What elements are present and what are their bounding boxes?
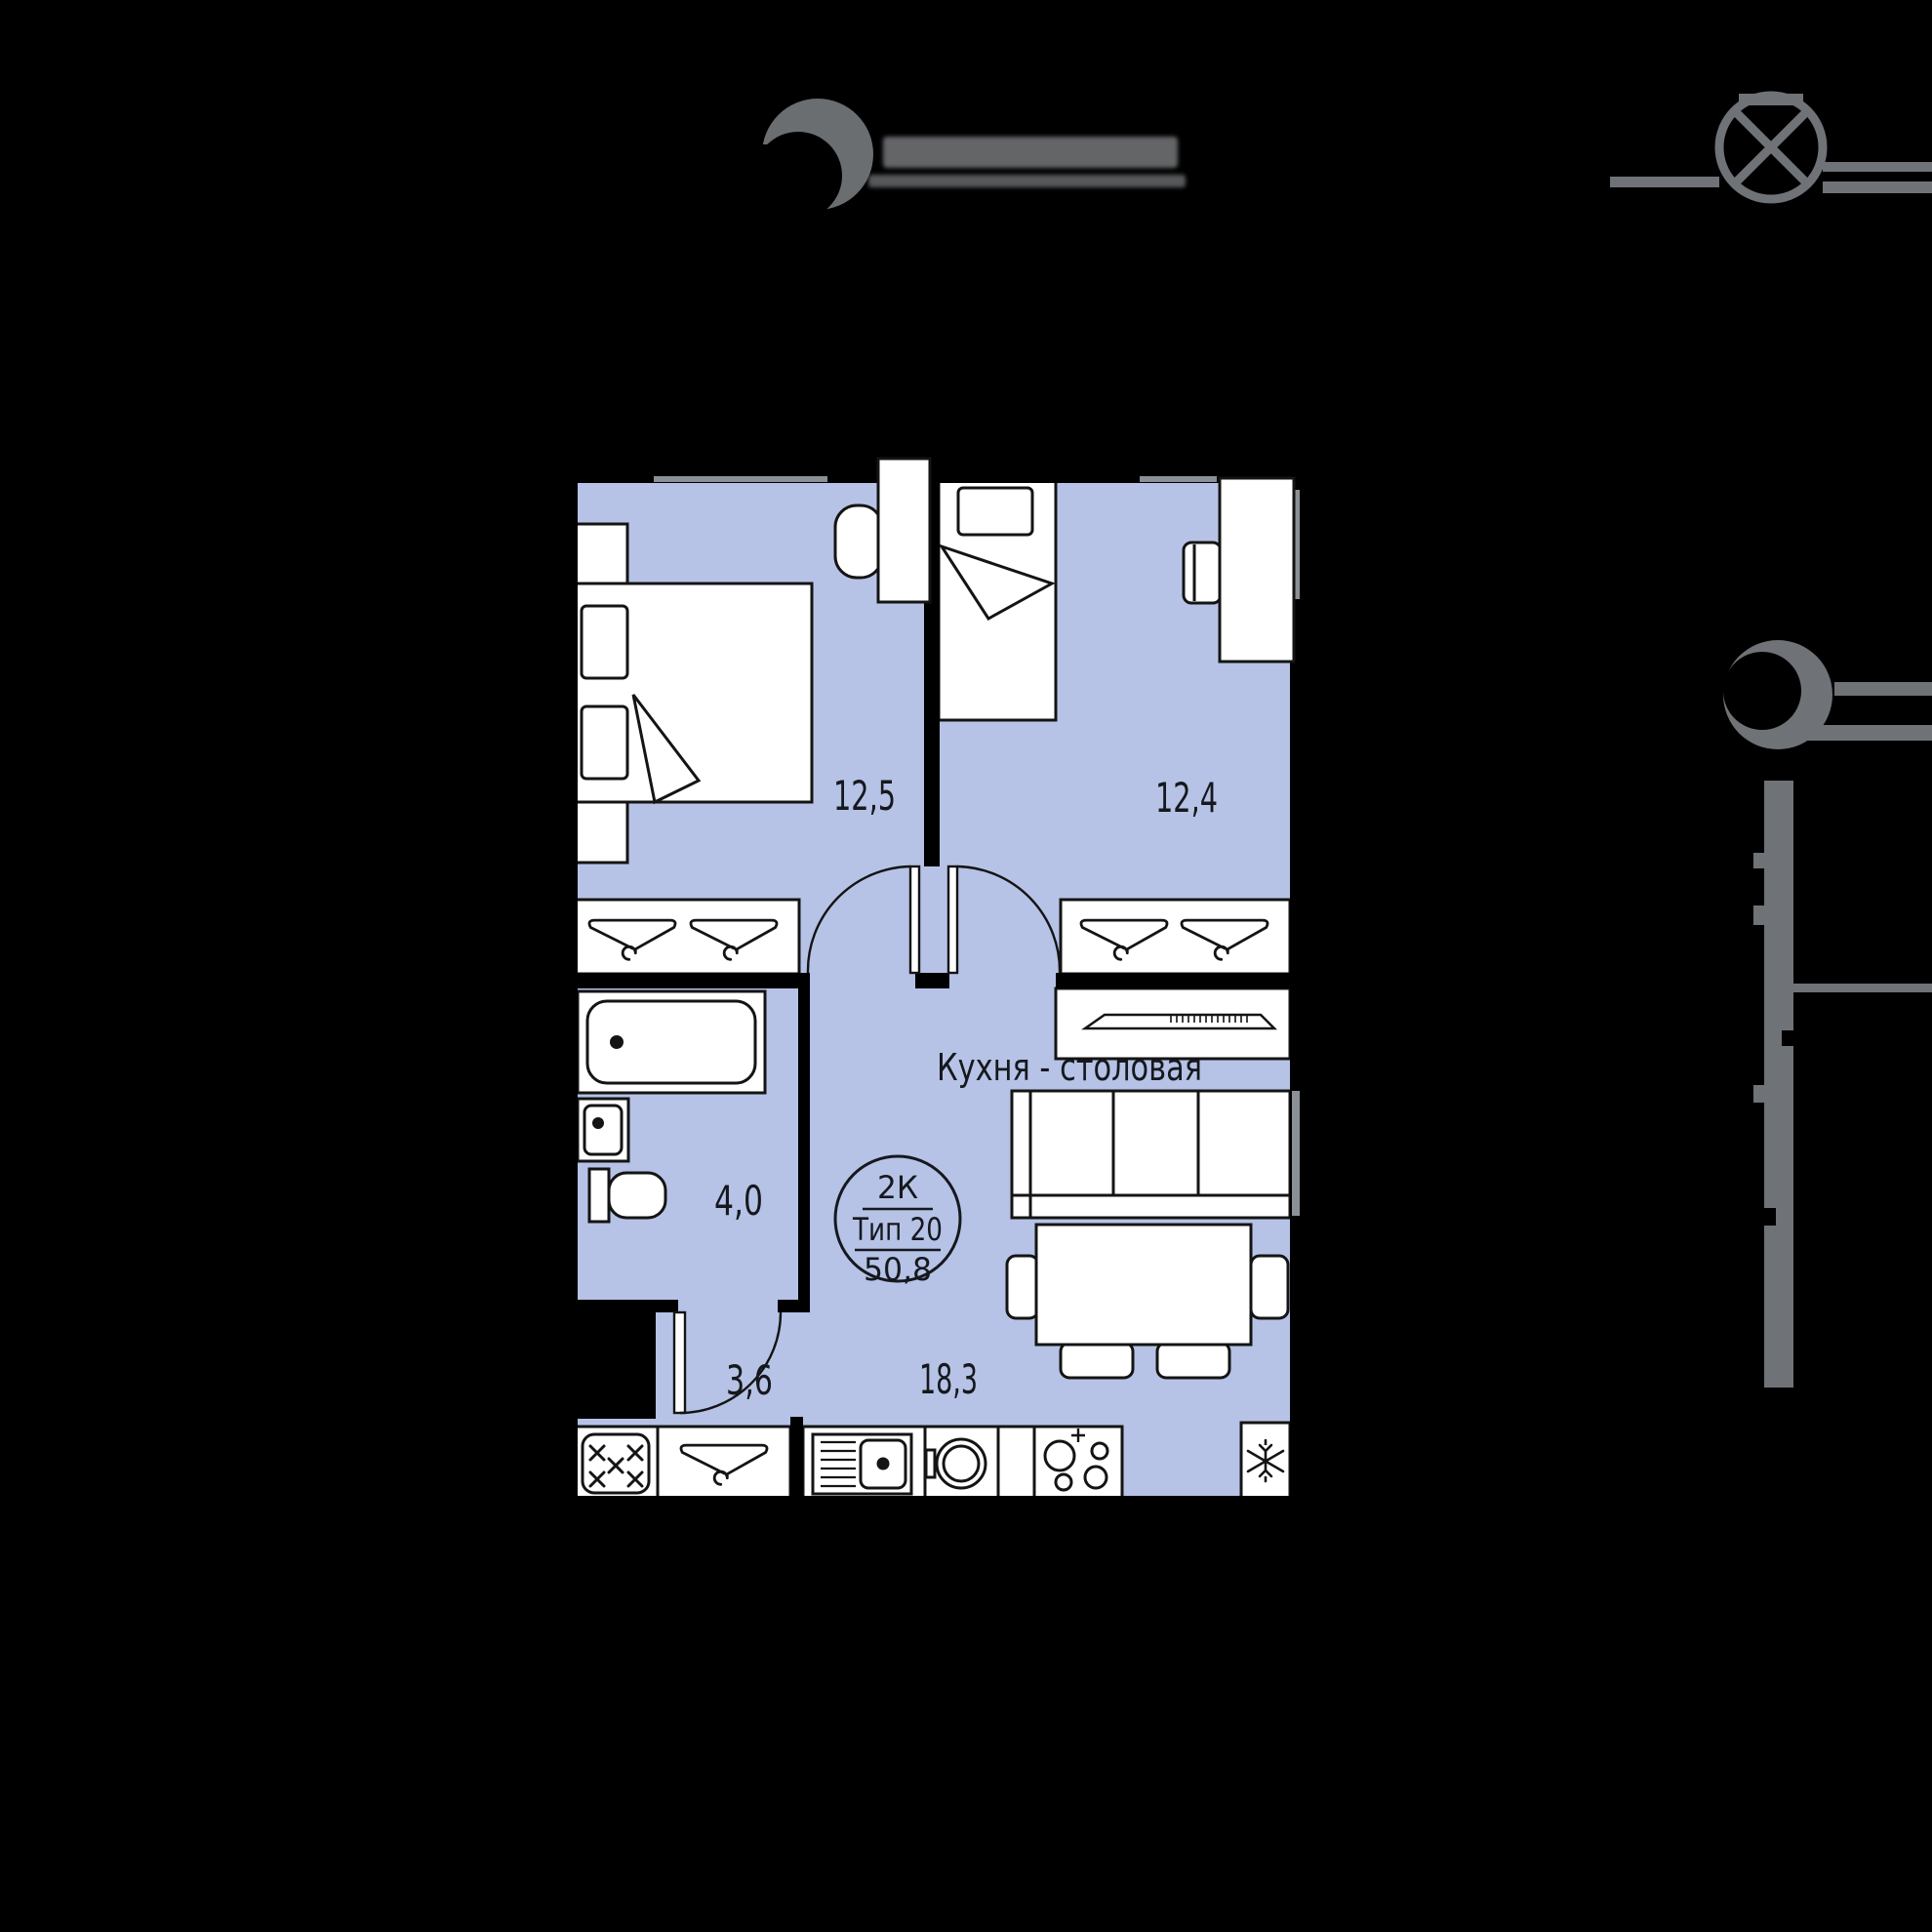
double-bed [575, 584, 812, 802]
building-bar [1764, 781, 1793, 1388]
badge-area: 50,8 [864, 1251, 932, 1288]
nightstand [574, 524, 627, 585]
fridge [1241, 1423, 1290, 1500]
area-hallway: 3,6 [726, 1356, 773, 1404]
dining-chair [1007, 1256, 1038, 1318]
wall-closet-left [561, 973, 810, 988]
badge-type: Тип 20 [852, 1211, 943, 1248]
desk [878, 459, 930, 602]
desk-chair [1184, 543, 1221, 603]
badge-rooms: 2К [877, 1169, 918, 1206]
window [1140, 476, 1217, 482]
window [654, 476, 827, 482]
sofa [1012, 1091, 1290, 1218]
area-bedroom-2: 12,4 [1155, 774, 1218, 822]
wall-door-stub [915, 973, 949, 988]
window [1292, 1091, 1300, 1216]
kitchen-sink [813, 1434, 911, 1494]
bathtub [578, 991, 765, 1093]
area-kitchen: 18,3 [919, 1355, 978, 1403]
wardrobe [573, 900, 799, 974]
wall-kitchen-stub [790, 1417, 803, 1500]
floorplan-canvas: 12,5 12,4 4,0 3,6 18,3 Кухня - столовая … [0, 0, 1932, 1932]
dining-chair [1061, 1343, 1133, 1378]
dining-chair [1251, 1256, 1288, 1318]
dining-table [1036, 1225, 1251, 1345]
area-bathroom: 4,0 [714, 1177, 763, 1225]
kitchen-dining-label: Кухня - столовая [937, 1046, 1202, 1089]
doormat-block [574, 1427, 658, 1500]
desk [1220, 478, 1294, 662]
wall-closet-right [1056, 973, 1303, 988]
bathroom-sink [578, 1099, 628, 1161]
wardrobe [1061, 900, 1290, 974]
wall-bathroom-right [798, 973, 810, 1312]
desk-chair [835, 505, 882, 578]
wall-bathroom-bottom-right [778, 1300, 810, 1312]
brand-wordmark [868, 137, 1186, 187]
hall-wardrobe-block [658, 1427, 790, 1500]
wall-niche [561, 1300, 656, 1419]
page: 12,5 12,4 4,0 3,6 18,3 Кухня - столовая … [0, 0, 1932, 1932]
toilet [589, 1169, 665, 1222]
single-bed [939, 480, 1056, 720]
area-bedroom-1: 12,5 [833, 772, 896, 820]
dining-chair [1157, 1343, 1229, 1378]
wall-bottom [561, 1496, 1304, 1506]
nightstand [574, 802, 627, 863]
